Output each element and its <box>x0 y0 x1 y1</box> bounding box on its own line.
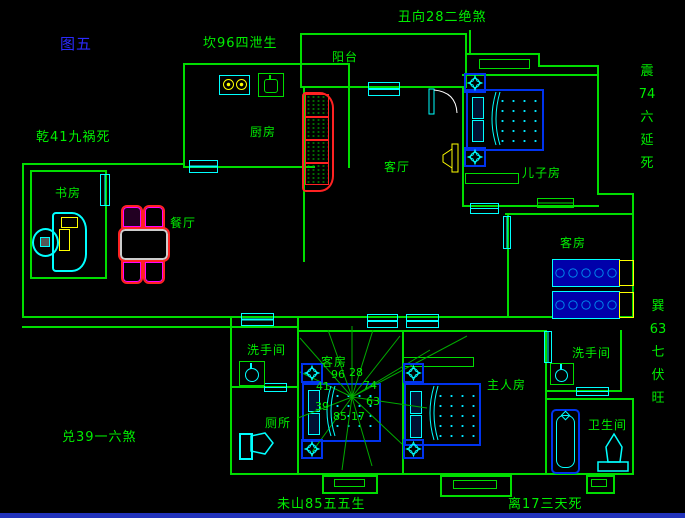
compass-value: 85 <box>333 410 347 423</box>
compass-value: 28 <box>349 366 363 379</box>
annotation-right-lower: 巽 63 七 伏 旺 <box>648 295 668 410</box>
annotation-left-lower: 兑39一六煞 <box>62 426 137 445</box>
annotation-bottom-right: 离17三天死 <box>508 493 583 512</box>
room-label-kitchen: 厨房 <box>250 123 276 140</box>
compass-value: 74 <box>363 379 377 392</box>
compass-value: 96 <box>331 368 345 381</box>
entry-door <box>429 89 457 114</box>
compass-lines <box>298 326 467 470</box>
toilet-icon <box>251 433 273 454</box>
compass-value: 41 <box>316 380 330 393</box>
room-label-washroom-right: 洗手间 <box>572 344 611 361</box>
room-label-balcony: 阳台 <box>332 48 358 65</box>
floor-plan-canvas: 图五 坎96四泄生 丑向28二绝煞 乾41九祸死 兑39一六煞 震 74 六 延… <box>0 0 685 518</box>
toilet-icon <box>598 434 628 471</box>
annotation-right-upper: 震 74 六 延 死 <box>637 60 657 175</box>
room-label-bathroom: 卫生间 <box>588 416 627 433</box>
room-label-washroom-left: 洗手间 <box>247 341 286 358</box>
room-label-master: 主人房 <box>487 376 526 393</box>
status-strip <box>0 513 685 518</box>
figure-label: 图五 <box>60 33 92 54</box>
lamp-icons <box>302 74 485 458</box>
compass-value: 39 <box>315 400 329 413</box>
compass-value: 17 <box>351 410 365 423</box>
annotation-left-upper: 乾41九祸死 <box>36 126 111 145</box>
annotation-top-right: 丑向28二绝煞 <box>398 6 487 25</box>
room-label-guest-right: 客房 <box>560 234 586 251</box>
bed-arcs <box>327 92 500 440</box>
compass-value: 63 <box>366 395 380 408</box>
annotation-bottom-left: 未山85五五生 <box>277 493 366 512</box>
annotation-top-center: 坎96四泄生 <box>203 32 278 51</box>
room-label-dining: 餐厅 <box>170 214 196 231</box>
room-label-son: 儿子房 <box>522 164 561 181</box>
room-label-toilet: 厕所 <box>265 414 291 431</box>
room-label-living: 客厅 <box>384 158 410 175</box>
room-label-study: 书房 <box>55 184 81 201</box>
tv-icon <box>443 144 458 172</box>
